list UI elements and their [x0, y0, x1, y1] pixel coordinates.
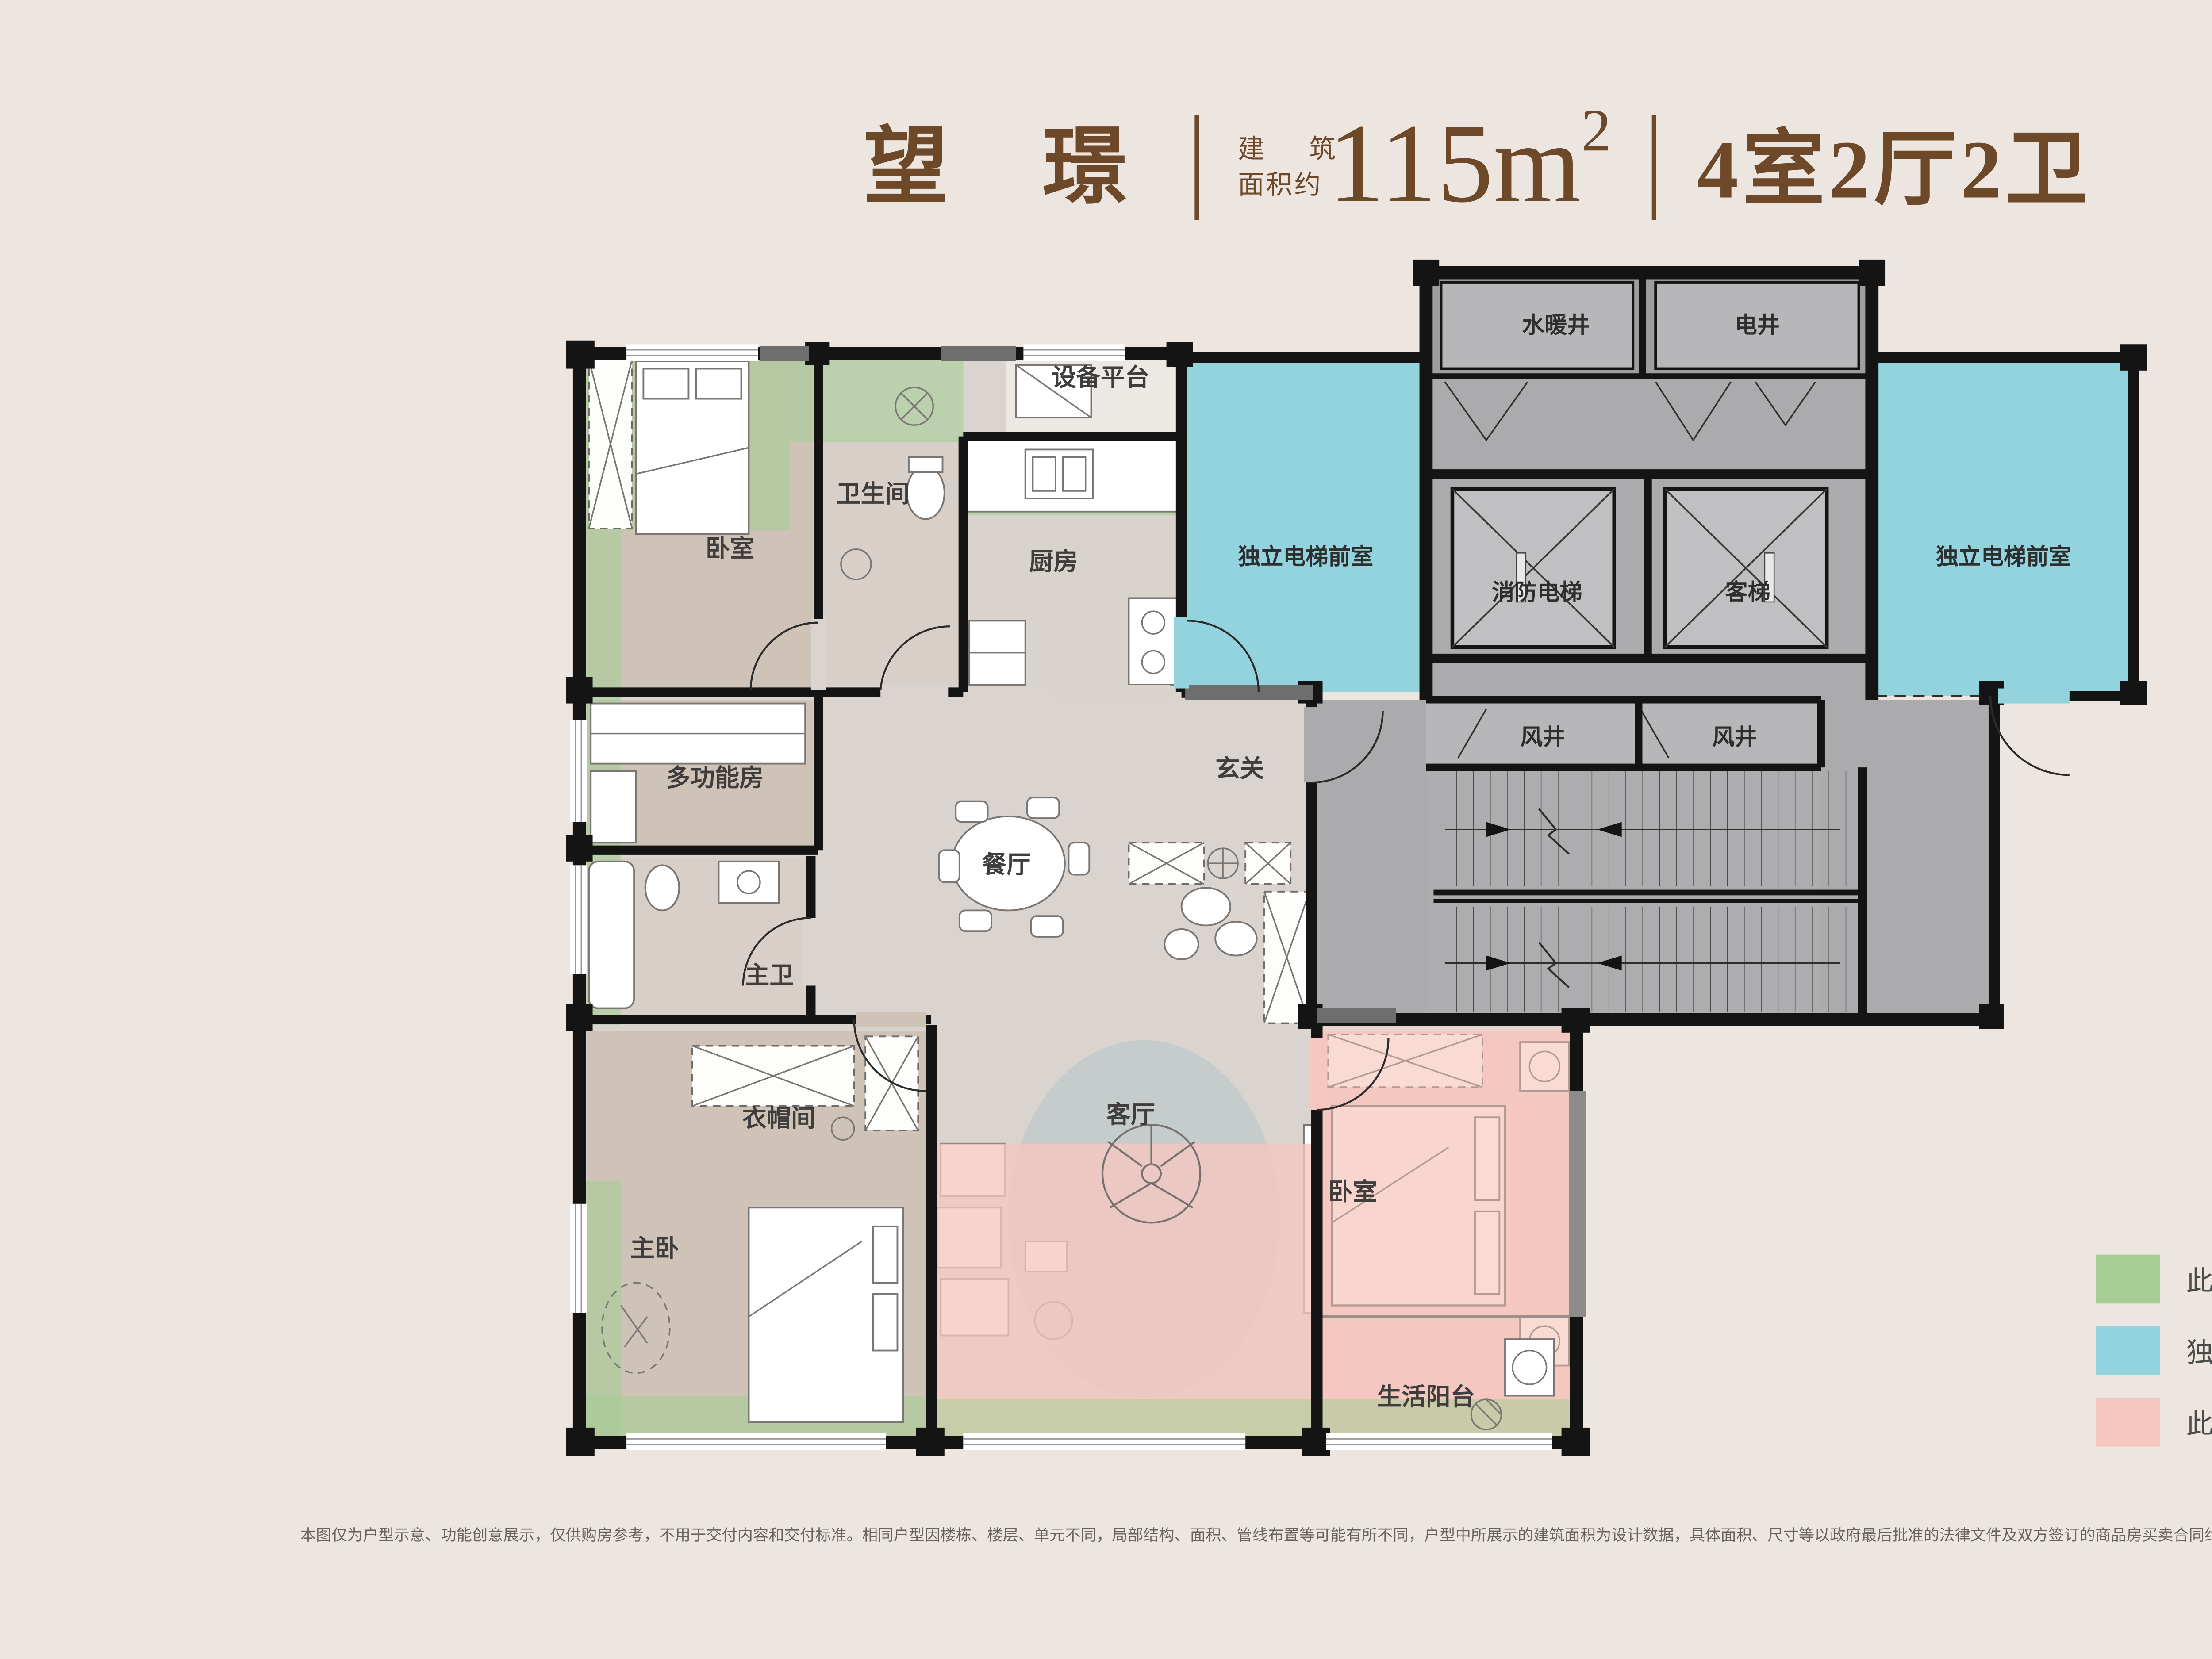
floorplan-canvas: 望璟 建 筑 面积约 115m2 4室2厅2卫: [0, 0, 2212, 1659]
room-label-elevator-lobby-right: 独立电梯前室: [1936, 544, 2071, 569]
room-label-multifunction-room: 多功能房: [666, 764, 764, 792]
unit-spec: 4室2厅2卫: [1697, 124, 2092, 216]
room-label-equipment-platform: 设备平台: [1052, 364, 1149, 391]
room-label-balcony: 生活阳台: [1377, 1383, 1475, 1410]
legend-swatch-pink: [2096, 1398, 2160, 1447]
disclaimer: 本图仅为户型示意、功能创意展示，仅供购房参考，不用于交付内容和交付标准。相同户型…: [300, 1527, 2212, 1544]
room-label-bedroom-top-left: 卧室: [706, 535, 755, 562]
room-label-fire-elevator: 消防电梯: [1492, 580, 1582, 605]
room-label-cloakroom: 衣帽间: [742, 1104, 816, 1132]
legend-label-blue: 独立电梯前室: [2186, 1337, 2212, 1368]
legend-label-pink: 此区域 50% 不计入产权面积: [2186, 1409, 2212, 1440]
room-label-bedroom-right: 卧室: [1328, 1178, 1377, 1205]
room-label-wind-shaft-b: 风井: [1712, 724, 1757, 750]
header-divider-1: [1194, 115, 1199, 220]
elevator-lobby-left-zone: [1185, 361, 1426, 692]
area-value: 115m2: [1328, 97, 1611, 226]
room-label-electrical-shaft: 电井: [1735, 313, 1780, 338]
room-label-passenger-elevator: 客梯: [1725, 580, 1770, 605]
room-label-master-bathroom: 主卫: [745, 962, 794, 989]
legend-swatch-blue: [2096, 1326, 2160, 1375]
elevator-lobby-right-zone: [1876, 361, 2134, 696]
legend-label-green: 此区域 100% 不计入产权面积: [2186, 1266, 2212, 1296]
room-label-water-heating-shaft: 水暖井: [1522, 313, 1590, 338]
room-label-wind-shaft-a: 风井: [1520, 724, 1565, 750]
floor-plan: 卧室 卫生间 设备平台 厨房 独立电梯前室 水暖井 电井 消防电梯 客梯 独立电…: [566, 260, 2147, 1456]
header-divider-2: [1652, 115, 1656, 220]
floorplan-page: 望璟 建 筑 面积约 115m2 4室2厅2卫: [0, 0, 2212, 1659]
legend: 此区域 100% 不计入产权面积 独立电梯前室 此区域 50% 不计入产权面积: [2096, 1255, 2212, 1447]
living-pink-zone: [931, 1144, 1317, 1441]
room-label-master-bedroom: 主卧: [630, 1234, 680, 1262]
page-title: 望璟: [864, 120, 1221, 214]
room-label-elevator-lobby-left: 独立电梯前室: [1238, 544, 1373, 569]
legend-swatch-green: [2096, 1255, 2160, 1304]
room-label-bathroom: 卫生间: [836, 480, 910, 508]
room-label-kitchen: 厨房: [1029, 548, 1078, 575]
staircase: [1433, 771, 1859, 1012]
room-label-dining-room: 餐厅: [982, 851, 1031, 878]
room-label-foyer: 玄关: [1215, 755, 1264, 782]
header: 望璟 建 筑 面积约 115m2 4室2厅2卫: [864, 97, 2092, 226]
area-label-line2: 面积约: [1238, 170, 1322, 199]
room-label-living-room: 客厅: [1106, 1101, 1156, 1128]
